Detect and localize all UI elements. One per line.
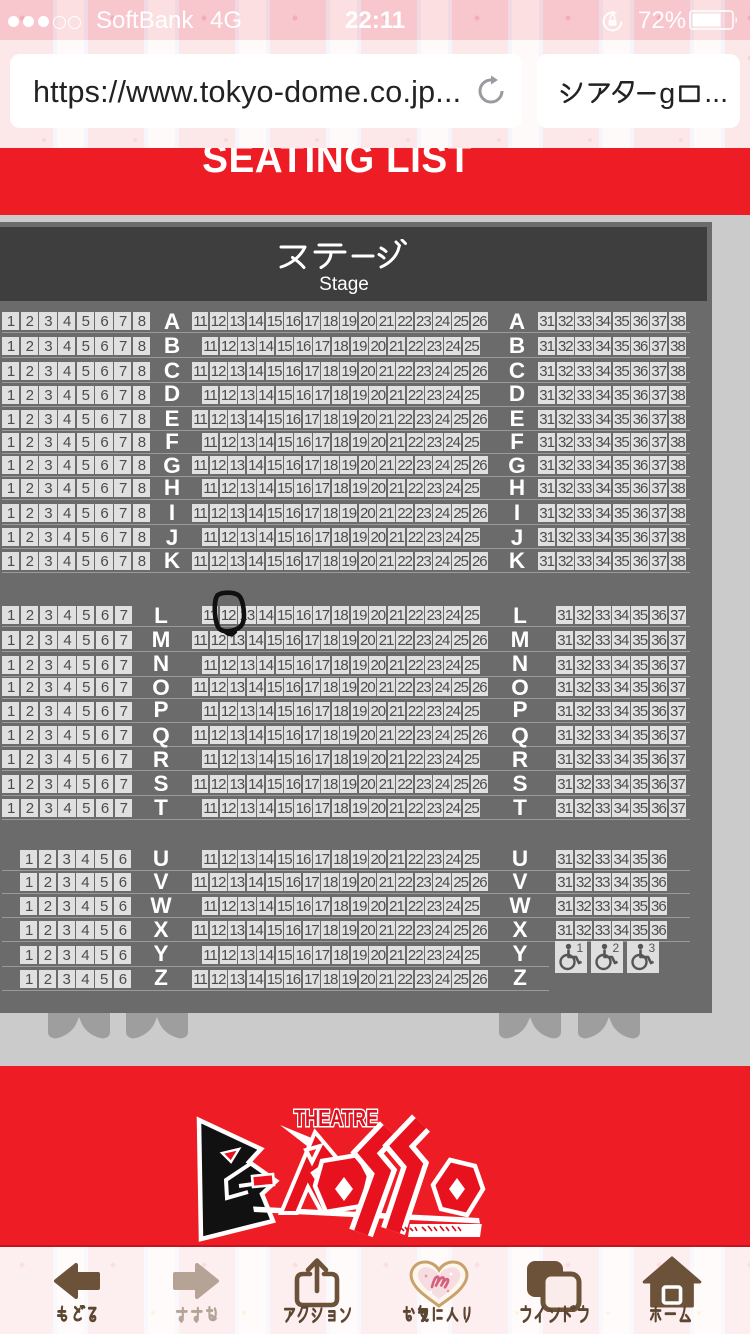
svg-text:1: 1 — [577, 941, 584, 955]
svg-text:2: 2 — [613, 941, 620, 955]
svg-text:THEATRE: THEATRE — [294, 1105, 378, 1131]
svg-text:...: ... — [704, 77, 728, 109]
svg-text:g: g — [659, 78, 675, 110]
svg-text:3: 3 — [649, 941, 656, 955]
